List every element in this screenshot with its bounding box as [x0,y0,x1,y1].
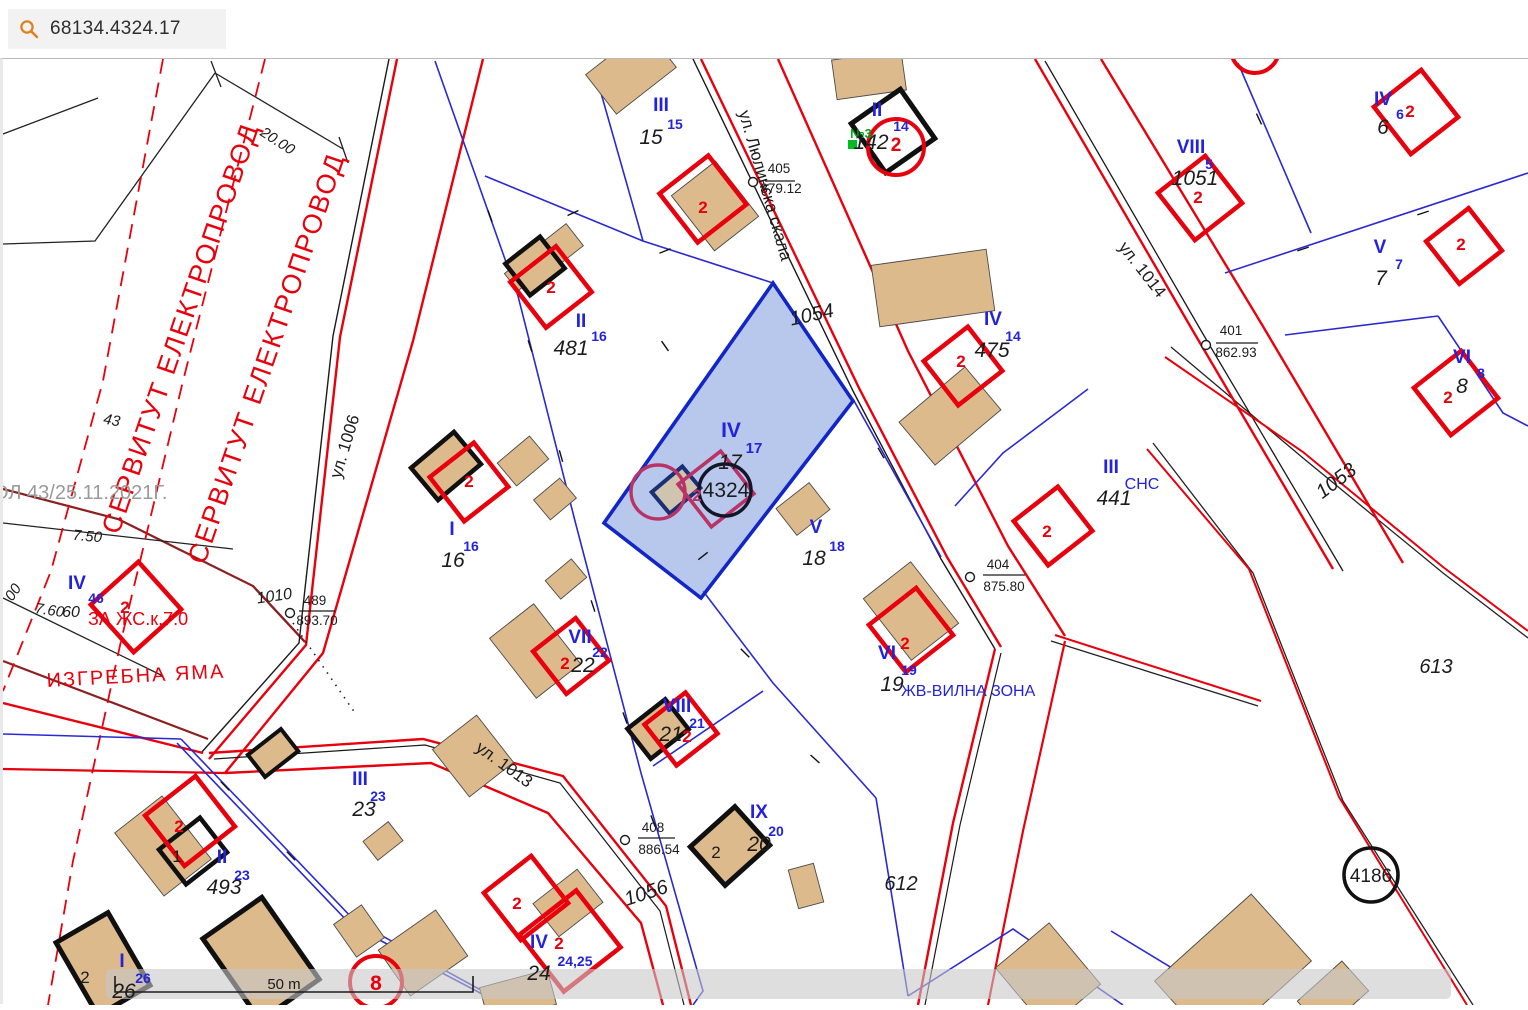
parcel-num: 1051 [1172,167,1219,190]
dim-label: 7.50 [72,527,103,547]
plot-roman: V [1374,237,1387,258]
plot-roman: IX [750,802,768,823]
parcel-num: 7 [1375,267,1388,290]
parcel-num: 612 [884,873,917,895]
building-num: 2 [1193,188,1202,207]
plot-roman: IV [721,419,741,442]
selected-parcel-num: 4324 [703,479,750,502]
fence-ticks [221,114,1429,861]
benchmark-bot: 893.70 [296,613,337,628]
parcel-num: 23 [351,798,376,821]
parcel-num: 21 [658,723,682,746]
dim-label: 00 [3,580,25,604]
parcel-num: 18 [802,547,826,570]
building-num: 2 [698,198,707,217]
plot-roman: I [119,951,124,972]
map-canvas[interactable]: 20.00СЕРВИТУТ ЕЛЕКТРОПРОВОДСЕРВИТУТ ЕЛЕК… [3,59,1528,1005]
parcel-num: 20 [746,833,771,856]
building-num: 2 [891,135,902,156]
plot-sup: 8 [1477,365,1485,381]
order-note: ОЛ 43/25.11.2021Г. [3,482,167,504]
parcel-num: 1010 [256,586,294,608]
zone-label: ЖВ-ВИЛНА ЗОНА [901,683,1036,700]
benchmark-bot: 875.80 [983,579,1024,594]
benchmark-top: 405 [768,161,791,176]
building-num: 2 [711,843,720,862]
parcel-num: 441 [1096,487,1131,510]
cadastre-map-app: { "header": { "search_value": "68134.432… [0,0,1528,1004]
parcel-num: 475 [974,339,1009,362]
plot-sup: 18 [829,538,845,554]
benchmark-top: 489 [304,593,327,608]
search-value[interactable]: 68134.4324.17 [50,18,181,40]
building-num: 2 [900,634,909,653]
plot-roman: III [1103,457,1119,478]
plot-sup: 17 [746,440,763,457]
scale-label: 50 m [267,976,300,993]
plot-sup: 46 [88,590,104,606]
building-num: 2 [956,352,965,371]
building-num: 2 [464,472,473,491]
parcel-num: 6 [1377,116,1389,139]
dim-label: 43 [102,411,122,431]
search-icon[interactable] [18,18,40,40]
scale-bar [106,969,1451,999]
plot-roman: IV [68,573,86,594]
benchmark-top: 404 [987,557,1010,572]
building-num: 2 [692,486,701,505]
parcel-num: 15 [639,126,663,149]
parcel-num: 22 [570,654,595,677]
plot-sup: 16 [591,328,607,344]
parcel-num: 613 [1419,656,1452,678]
plot-roman: IV [984,309,1002,330]
parcel-num: 17 [718,451,743,474]
plot-roman: VI [1453,347,1471,368]
plot-sup: 6 [1396,106,1404,122]
building-num: 8 [370,972,382,995]
plot-roman: VIII [1177,137,1206,158]
plot-sup: 14 [893,118,909,134]
benchmark-top: 401 [1220,323,1243,338]
building-num: 2 [1405,102,1414,121]
header-bar: 68134.4324.17 [0,0,1528,58]
landmark-num: 4186 [1350,866,1392,887]
building-num: 2 [554,934,563,953]
building-num: 1 [172,847,181,866]
search-input[interactable]: 68134.4324.17 [8,9,226,49]
plot-roman: VI [878,643,896,664]
plot-roman: III [653,95,669,116]
plot-sup: 7 [1395,256,1403,272]
benchmark-bot: 886.54 [638,842,680,857]
building-num: 2 [512,894,521,913]
zone-label: ЗА ЖС.к.7.0 [88,609,188,629]
plot-roman: III [352,769,368,790]
dim-label: 60 [62,604,80,621]
building-num: 2 [174,817,183,836]
benchmark-bot: 862.93 [1215,345,1256,360]
building-num: 2 [546,278,555,297]
plot-roman: V [810,517,823,538]
parcel-num: 493 [206,876,241,899]
parcel-num: 481 [553,337,588,360]
zone-label: ИЗГРЕБНА ЯМА [46,661,226,692]
plot-roman: VII [568,627,591,648]
building-num: 2 [1443,388,1452,407]
building-num: 2 [1042,522,1051,541]
plot-roman: I [449,519,454,540]
building-num: 2 [1456,235,1465,254]
plot-roman: II [576,311,587,332]
plot-sup: 26 [135,970,151,986]
building-num: 2 [560,654,569,673]
parcel-num: 8 [1456,375,1468,398]
building-num: 2 [682,727,691,746]
parcel-num: 16 [441,549,465,572]
map-viewport[interactable]: 20.00СЕРВИТУТ ЕЛЕКТРОПРОВОДСЕРВИТУТ ЕЛЕК… [0,58,1528,1004]
parcel-num: 26 [111,980,136,1003]
street-label: ул. 1014 [1115,238,1170,301]
benchmark-top: 408 [642,820,665,835]
plot-roman: IV [530,932,548,953]
parcel-num: 24 [526,962,550,985]
plot-roman: IV [1374,89,1392,110]
plot-sup: 15 [667,116,683,132]
plot-sup: 24,25 [557,953,592,969]
parcel-num: 142 [853,131,888,154]
plot-sup: 16 [463,538,479,554]
plot-roman: II [872,100,883,121]
plot-roman: VIII [663,696,692,717]
building-num: 2 [80,968,89,987]
benchmark-bot: 879.12 [760,181,801,196]
plot-roman: II [217,847,228,868]
